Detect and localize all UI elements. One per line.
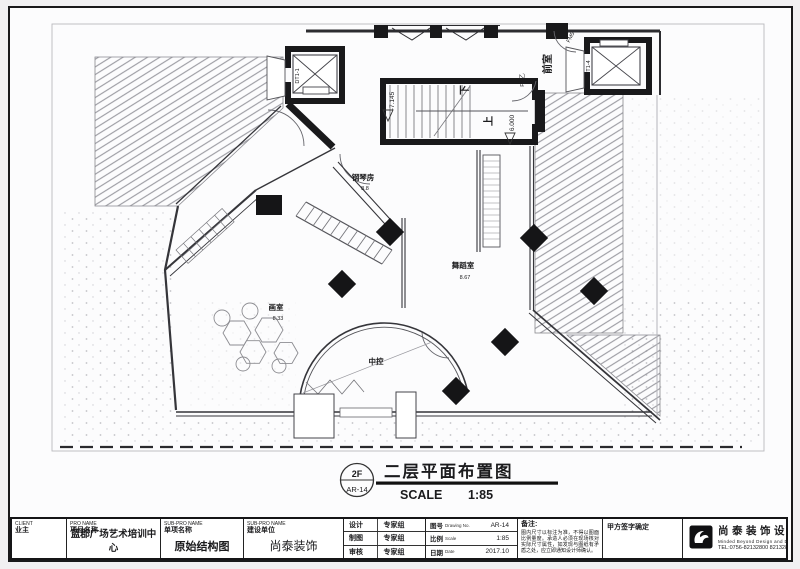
sign-label: 甲方签字确定 — [603, 519, 682, 532]
wall-block-right — [535, 90, 545, 132]
meta-row: 日期 Date 2017.10 — [426, 545, 517, 558]
level-low-label: -7.145 — [389, 91, 396, 110]
builder-name: 尚泰装饰 — [244, 537, 343, 554]
subproject-label-en: SUB-PRO NAME — [161, 519, 243, 527]
drawing-title-group: 2F AR-14 二层平面布置图 SCALE 1:85 — [341, 461, 559, 502]
drawing-number: AR-14 — [491, 522, 517, 529]
remark-label: 备注: — [518, 519, 602, 529]
role-row: 制图 专家组 — [344, 531, 425, 544]
role-label: 审核 — [344, 547, 377, 557]
stair-down-label: 下 — [459, 85, 471, 95]
meta-label-en: Drawing No. — [445, 523, 470, 528]
piano-room-label: 钢琴房 — [352, 172, 375, 182]
hatch-bottom-right — [567, 335, 660, 416]
titleblock-meta-cell: 图号 Drawing No. AR-14 比例 Scale 1:85 日期 Da… — [425, 519, 517, 558]
control-arc — [300, 323, 467, 396]
vestibule-label: 前室 — [541, 54, 554, 74]
titleblock-builder-cell: SUB-PRO NAME 建设单位 尚泰装饰 — [243, 519, 343, 558]
elevator-right-door — [566, 47, 584, 92]
role-row: 审核 专家组 — [344, 545, 425, 558]
art-room-label: 画室 — [269, 302, 284, 312]
control-room-label: 中控 — [369, 356, 384, 366]
drawing-sheet: DT1-1 DT1-4 — [0, 0, 800, 569]
elevator-right: DT1-4 — [566, 37, 652, 95]
dance-room-label: 舞蹈室 — [452, 260, 475, 270]
subproject-label-cn: 单项名称 — [161, 527, 243, 535]
elevator-left-door — [267, 56, 285, 100]
role-value: 专家组 — [377, 532, 425, 544]
brand-telephone: TEL:0756-82132800 82132810 — [718, 545, 786, 551]
titleblock-project-cell: PRO NAME 项目名称 蓝郡广场艺术培训中心 — [66, 519, 160, 558]
titleblock-subproject-cell: SUB-PRO NAME 单项名称 原始结构图 — [160, 519, 243, 558]
role-label: 设计 — [344, 520, 377, 530]
drawing-scale: 1:85 — [496, 535, 517, 542]
drawing-title: 二层平面布置图 — [384, 461, 514, 481]
column-square — [256, 195, 282, 215]
hatch-top-left — [95, 57, 283, 206]
brand-subtitle: Minded Beyond Design and Decoration — [718, 539, 786, 544]
floor-plan-svg: DT1-1 DT1-4 — [0, 0, 800, 569]
role-value: 专家组 — [377, 519, 425, 531]
scale-word: SCALE — [400, 488, 442, 502]
title-bubble-top: 2F — [352, 469, 363, 479]
pier-left — [294, 394, 334, 438]
client-label-cn: 业主 — [12, 527, 66, 535]
scale-value: 1:85 — [468, 488, 493, 502]
meta-label-cn: 图号 — [426, 520, 443, 530]
titleblock-sign-cell: 甲方签字确定 — [602, 519, 682, 558]
client-label-en: CLIENT — [12, 519, 66, 527]
art-room-area: 8.33 — [273, 316, 284, 322]
meta-label-en: Scale — [445, 536, 456, 541]
project-name: 蓝郡广场艺术培训中心 — [67, 526, 160, 554]
meta-row: 图号 Drawing No. AR-14 — [426, 519, 517, 531]
elevator-right-label: DT1-4 — [586, 60, 592, 75]
meta-label-cn: 日期 — [426, 547, 443, 557]
titleblock-brand-cell: 尚泰装饰设计 Minded Beyond Design and Decorati… — [682, 519, 786, 558]
hatch-right-band — [535, 93, 623, 333]
brand-logo-icon — [689, 525, 713, 549]
meta-label-cn: 比例 — [426, 533, 443, 543]
brand-row: 尚泰装饰设计 Minded Beyond Design and Decorati… — [683, 519, 786, 551]
drawing-date: 2017.10 — [486, 548, 518, 555]
wall-diagonal-black — [288, 104, 333, 147]
piano — [483, 155, 500, 247]
bottom-opening — [340, 408, 392, 417]
title-underline — [376, 482, 558, 485]
stage-zigzag — [306, 380, 364, 394]
elevator-left-label: DT1-1 — [295, 68, 301, 83]
title-bubble-code: AR-14 — [346, 485, 367, 494]
meta-row: 比例 Scale 1:85 — [426, 531, 517, 544]
level-high-label: 6.000 — [509, 114, 516, 131]
dance-room-area: 8.67 — [460, 275, 471, 281]
role-row: 设计 专家组 — [344, 519, 425, 531]
titleblock-roles-cell: 设计 专家组 制图 专家组 审核 专家组 — [343, 519, 425, 558]
builder-label-en: SUB-PRO NAME — [244, 519, 343, 527]
titleblock-client-cell: CLIENT 业主 — [12, 519, 66, 558]
subproject-name: 原始结构图 — [161, 538, 243, 554]
piano-room-area: 8.8 — [361, 186, 369, 192]
brand-name: 尚泰装饰设计 — [718, 523, 786, 538]
role-value: 专家组 — [377, 546, 425, 558]
brand-text-block: 尚泰装饰设计 Minded Beyond Design and Decorati… — [718, 523, 786, 551]
staircase: 下 上 -7.145 6.000 — [380, 78, 538, 145]
elevator-left: DT1-1 — [267, 46, 345, 104]
room-labels: 钢琴房 8.8 舞蹈室 8.67 画室 8.33 中控 — [269, 172, 475, 366]
meta-label-en: Date — [445, 549, 455, 554]
role-label: 制图 — [344, 533, 377, 543]
remark-text: 图内尺寸以标注为准，不得以图面比例量度。承造人必须在现场核对实际尺寸属性，如发现… — [518, 529, 602, 554]
fire-door-side-label: FM乙 — [519, 73, 526, 87]
stair-up-label: 上 — [482, 116, 495, 126]
pier-right — [396, 392, 416, 438]
title-block: CLIENT 业主 PRO NAME 项目名称 蓝郡广场艺术培训中心 SUB-P… — [10, 517, 788, 560]
builder-label-cn: 建设单位 — [244, 527, 343, 535]
titleblock-remark-cell: 备注: 图内尺寸以标注为准，不得以图面比例量度。承造人必须在现场核对实际尺寸属性… — [517, 519, 602, 558]
